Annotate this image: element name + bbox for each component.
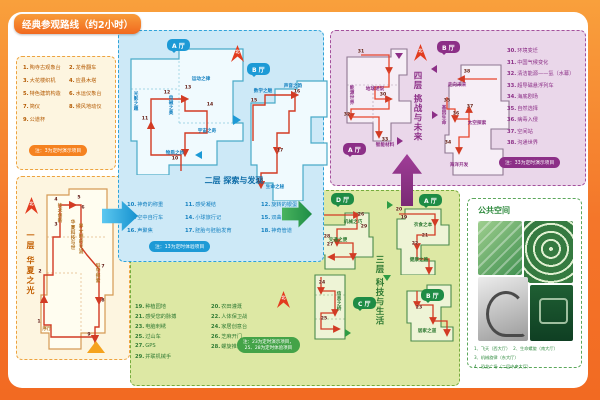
floor1-map-panel: 北 一层 华夏之光 序厅技术创新华夏科技与世界文明的交流科学探索12345678… xyxy=(16,176,130,360)
route-direction-arrow xyxy=(395,53,403,59)
floor2-hall-a-outline xyxy=(125,43,247,175)
hall-badge-a-f3: A 厅 xyxy=(419,194,442,206)
legend-item: 21.感受您的脉搏 xyxy=(135,313,211,323)
hall-badge-b-f2: B 厅 xyxy=(247,63,270,75)
route-waypoint-number: 38 xyxy=(464,70,470,75)
legend-item: 18.神奇管道 xyxy=(261,227,319,240)
route-waypoint-number: 3 xyxy=(54,223,57,228)
map-area-label: 信息之桥 xyxy=(335,291,341,311)
route-waypoint-number: 1 xyxy=(37,320,40,325)
legend-item: 23.电脑刺绣 xyxy=(135,323,211,333)
map-area-label: 界文明的交流 xyxy=(77,224,83,255)
floor3-note-pill: 注：23为定时演示项目， 25、28为定时体验项目 xyxy=(237,337,300,353)
map-area-label: 智能材料 xyxy=(376,142,394,148)
floor4-panel: A 厅 B 厅 北 四层 挑战与未来 能源世界地球述说智能材料31303233 xyxy=(330,30,586,186)
route-waypoint-number: 8 xyxy=(101,299,104,304)
map-area-label: 机械之巧 xyxy=(344,219,362,225)
route-direction-arrow xyxy=(195,151,202,159)
floor2-note-pill: 注：13为定时体验项目 xyxy=(149,241,210,252)
route-waypoint-number: 15 xyxy=(251,99,257,104)
legend-item: 10.神奇的称重 xyxy=(127,201,185,214)
floor4-label: 四层 挑战与未来 xyxy=(411,71,423,141)
route-waypoint-number: 19 xyxy=(401,216,407,221)
floor2-legend-list: 10.神奇的称重11.感受凝结12.旋转的银蛋13.空中自行车14.小球旅行记1… xyxy=(127,201,319,240)
map-area-label: 衣食之本 xyxy=(414,222,432,228)
route-waypoint-number: 7 xyxy=(101,265,104,270)
map-area-label: 华夏科技与世 xyxy=(69,220,75,251)
map-area-label: 基因生命 xyxy=(440,105,446,125)
floor3-legend-list: 19.种植园地20.农田灌溉21.感受您的脉搏22.人体保卫战23.电脑刺绣24… xyxy=(135,303,297,363)
route-waypoint-number: 30 xyxy=(380,93,386,98)
floor4-note-pill: 注：33为定时演示项目 xyxy=(499,157,560,168)
route-waypoint-number: 36 xyxy=(453,112,459,117)
hall-badge-d: D 厅 xyxy=(331,193,354,205)
north-compass-icon-f3: 北 xyxy=(277,291,290,308)
legend-item: 6.水运仪象台 xyxy=(69,90,113,103)
route-waypoint-number: 11 xyxy=(142,117,148,122)
map-area-label: 声音之韵 xyxy=(284,83,302,89)
hall-badge-b-f4: B 厅 xyxy=(437,41,460,53)
floor2-label: 二层 探索与发现 xyxy=(179,175,289,186)
map-area-label: 地球述说 xyxy=(366,86,384,92)
page-title: 经典参观路线（约2小时） xyxy=(14,14,141,34)
route-waypoint-number: 35 xyxy=(444,99,450,104)
route-waypoint-number: 23 xyxy=(416,306,422,311)
route-waypoint-number: 37 xyxy=(467,105,473,110)
route-waypoint-number: 5 xyxy=(77,196,80,201)
entrance-marker-icon xyxy=(87,341,105,353)
map-area-label: 物质之妙 xyxy=(166,150,184,156)
legend-item: 17.胚胎与胚胎发育 xyxy=(185,227,261,240)
north-compass-icon-f2: 北 xyxy=(231,45,244,62)
route-direction-arrow xyxy=(383,275,391,281)
legend-item: 9.公道杯 xyxy=(23,116,69,129)
north-compass-icon: 北 xyxy=(25,197,38,214)
legend-item: 5.特色建筑构造 xyxy=(23,90,69,103)
map-area-label: 居家之道 xyxy=(418,328,436,334)
legend-item: 4、恐龙广场（二层中央大厅） xyxy=(474,363,531,370)
map-area-label: 技术创新 xyxy=(56,203,62,223)
map-area-label: 电磁之奥 xyxy=(167,95,173,115)
map-area-label: 数学之魅 xyxy=(254,88,272,94)
public-space-photos xyxy=(478,221,573,341)
compass-north-label: 北 xyxy=(231,49,244,55)
public-space-panel: 公共空间 1、飞天（西大厅）2、生命螺旋（南大厅）3、机械旋律（东大厅）4、恐龙… xyxy=(467,198,582,368)
map-area-label: 健康之路 xyxy=(410,257,428,263)
legend-item: 22.人体保卫战 xyxy=(211,313,297,323)
map-area-label: 走向未来 xyxy=(448,82,466,88)
hall-badge-c: C 厅 xyxy=(353,297,376,309)
route-waypoint-number: 9 xyxy=(87,333,90,338)
route-waypoint-number: 10 xyxy=(172,157,178,162)
compass-north-label: 北 xyxy=(25,201,38,207)
hall-badge-b-f3: B 厅 xyxy=(421,289,444,301)
route-waypoint-number: 27 xyxy=(327,243,333,248)
public-space-title: 公共空间 xyxy=(478,205,510,216)
legend-item: 32.清洁能源——氢（水幕） xyxy=(507,70,587,82)
legend-item: 1.陶寺古观象台 xyxy=(23,64,69,77)
poster-background: 经典参观路线（约2小时） 1.陶寺古观象台2.龙骨翻车3.大花楼织机4.应县木塔… xyxy=(0,0,600,400)
route-waypoint-number: 17 xyxy=(277,149,283,154)
hall-badge-a-f4: A 厅 xyxy=(343,143,366,155)
route-waypoint-number: 33 xyxy=(382,138,388,143)
floor3-label: 三层 科技与生活 xyxy=(373,255,385,325)
legend-item: 34.海底剧场 xyxy=(507,93,587,105)
floor4-hall-a-map: 能源世界地球述说智能材料31303233 xyxy=(339,45,413,151)
hall-badge-a-f2: A 厅 xyxy=(167,39,190,51)
route-waypoint-number: 14 xyxy=(207,103,213,108)
legend-item: 8.候风地动仪 xyxy=(69,103,113,116)
floor1-label: 一层 华夏之光 xyxy=(25,231,36,296)
route-direction-arrow xyxy=(345,329,351,337)
legend-item: 24.家居创意台 xyxy=(211,323,297,333)
route-waypoint-number: 21 xyxy=(422,234,428,239)
legend-item: 2、生命螺旋（南大厅） xyxy=(513,345,558,352)
floor1-legend-list: 1.陶寺古观象台2.龙骨翻车3.大花楼织机4.应县木塔5.特色建筑构造6.水运仪… xyxy=(23,64,113,129)
route-waypoint-number: 20 xyxy=(396,208,402,213)
legend-item: 4.应县木塔 xyxy=(69,77,113,90)
route-waypoint-number: 13 xyxy=(185,86,191,91)
legend-item: 35.自然选择 xyxy=(507,105,587,117)
route-waypoint-number: 32 xyxy=(344,113,350,118)
legend-item: 3.大花楼织机 xyxy=(23,77,69,90)
north-compass-icon-f4: 北 xyxy=(414,44,427,61)
photo-life-spiral-sculpture xyxy=(524,221,573,283)
route-waypoint-number: 28 xyxy=(324,235,330,240)
route-waypoint-number: 6 xyxy=(81,206,84,211)
legend-item: 29.并联机械手 xyxy=(135,353,211,363)
route-waypoint-number: 34 xyxy=(445,141,451,146)
photo-mechanical-melody xyxy=(530,285,573,341)
public-space-list: 1、飞天（西大厅）2、生命螺旋（南大厅）3、机械旋律（东大厅）4、恐龙广场（二层… xyxy=(474,343,579,370)
legend-item: 7.简仪 xyxy=(23,103,69,116)
floor1-note-pill: 注：3为定时演示项目 xyxy=(29,145,87,156)
legend-item: 33.超导磁悬浮列车 xyxy=(507,82,587,94)
floor2-hall-a-map: 光影之趣电磁之奥运动之律宇宙之奇物质之妙1011121314 xyxy=(125,43,247,175)
map-area-label: 光影之趣 xyxy=(132,91,138,111)
route-waypoint-number: 24 xyxy=(319,281,325,286)
legend-item: 16.声聚焦 xyxy=(127,227,185,240)
route-waypoint-number: 26 xyxy=(358,213,364,218)
route-waypoint-number: 4 xyxy=(54,198,57,203)
route-waypoint-number: 25 xyxy=(321,317,327,322)
legend-item: 30.环境变迁 xyxy=(507,47,587,59)
route-waypoint-number: 16 xyxy=(294,90,300,95)
map-area-label: 运动之律 xyxy=(192,76,210,82)
floor4-legend-list: 30.环境变迁31.中国气候变化32.清洁能源——氢（水幕）33.超导磁悬浮列车… xyxy=(507,47,587,151)
floor2-panel: A 厅 B 厅 北 光影之趣电磁之奥运动之律宇宙之奇物质之妙1011121314 xyxy=(118,30,324,262)
photo-dinosaur-plaza xyxy=(478,277,528,341)
photo-feitian-sculpture xyxy=(478,221,522,275)
map-area-label: 序厅 xyxy=(42,326,51,332)
compass-north-label: 北 xyxy=(277,295,290,301)
legend-item: 1、飞天（西大厅） xyxy=(474,345,510,352)
legend-item: 25.过山车 xyxy=(135,333,211,343)
floor1-legend-panel: 1.陶寺古观象台2.龙骨翻车3.大花楼织机4.应县木塔5.特色建筑构造6.水运仪… xyxy=(16,56,116,170)
legend-item: 19.种植园地 xyxy=(135,303,211,313)
route-direction-arrow xyxy=(387,201,393,209)
legend-item: 36.病毒入侵 xyxy=(507,116,587,128)
route-direction-arrow xyxy=(432,111,438,119)
route-direction-arrow xyxy=(233,115,241,125)
legend-item: 3、机械旋律（东大厅） xyxy=(474,354,519,361)
map-area-label: 科学探索 xyxy=(94,263,100,283)
floor3-note-line2: 25、28为定时体验项目 xyxy=(243,345,294,351)
route-waypoint-number: 31 xyxy=(358,50,364,55)
route-waypoint-number: 2 xyxy=(38,270,41,275)
legend-item: 38.沟通世界 xyxy=(507,139,587,151)
route-direction-arrow xyxy=(431,65,437,73)
legend-item: 27.GPS xyxy=(135,343,211,353)
legend-item: 11.感受凝结 xyxy=(185,201,261,214)
route-direction-arrow xyxy=(397,137,403,145)
legend-item: 2.龙骨翻车 xyxy=(69,64,113,77)
compass-north-label: 北 xyxy=(414,48,427,54)
route-waypoint-number: 22 xyxy=(412,242,418,247)
map-area-label: 能源世界 xyxy=(348,85,354,105)
route-waypoint-number: 12 xyxy=(164,91,170,96)
legend-item: 31.中国气候变化 xyxy=(507,59,587,71)
legend-item: 37.空间站 xyxy=(507,128,587,140)
floor3-hall-a-map: 衣食之本健康之路20192122 xyxy=(391,205,455,275)
legend-item: 14.小球旅行记 xyxy=(185,214,261,227)
map-area-label: 海洋开发 xyxy=(450,162,468,168)
map-area-label: 宇宙之奇 xyxy=(198,128,216,134)
route-waypoint-number: 29 xyxy=(361,225,367,230)
map-area-label: 太空探索 xyxy=(468,120,486,126)
